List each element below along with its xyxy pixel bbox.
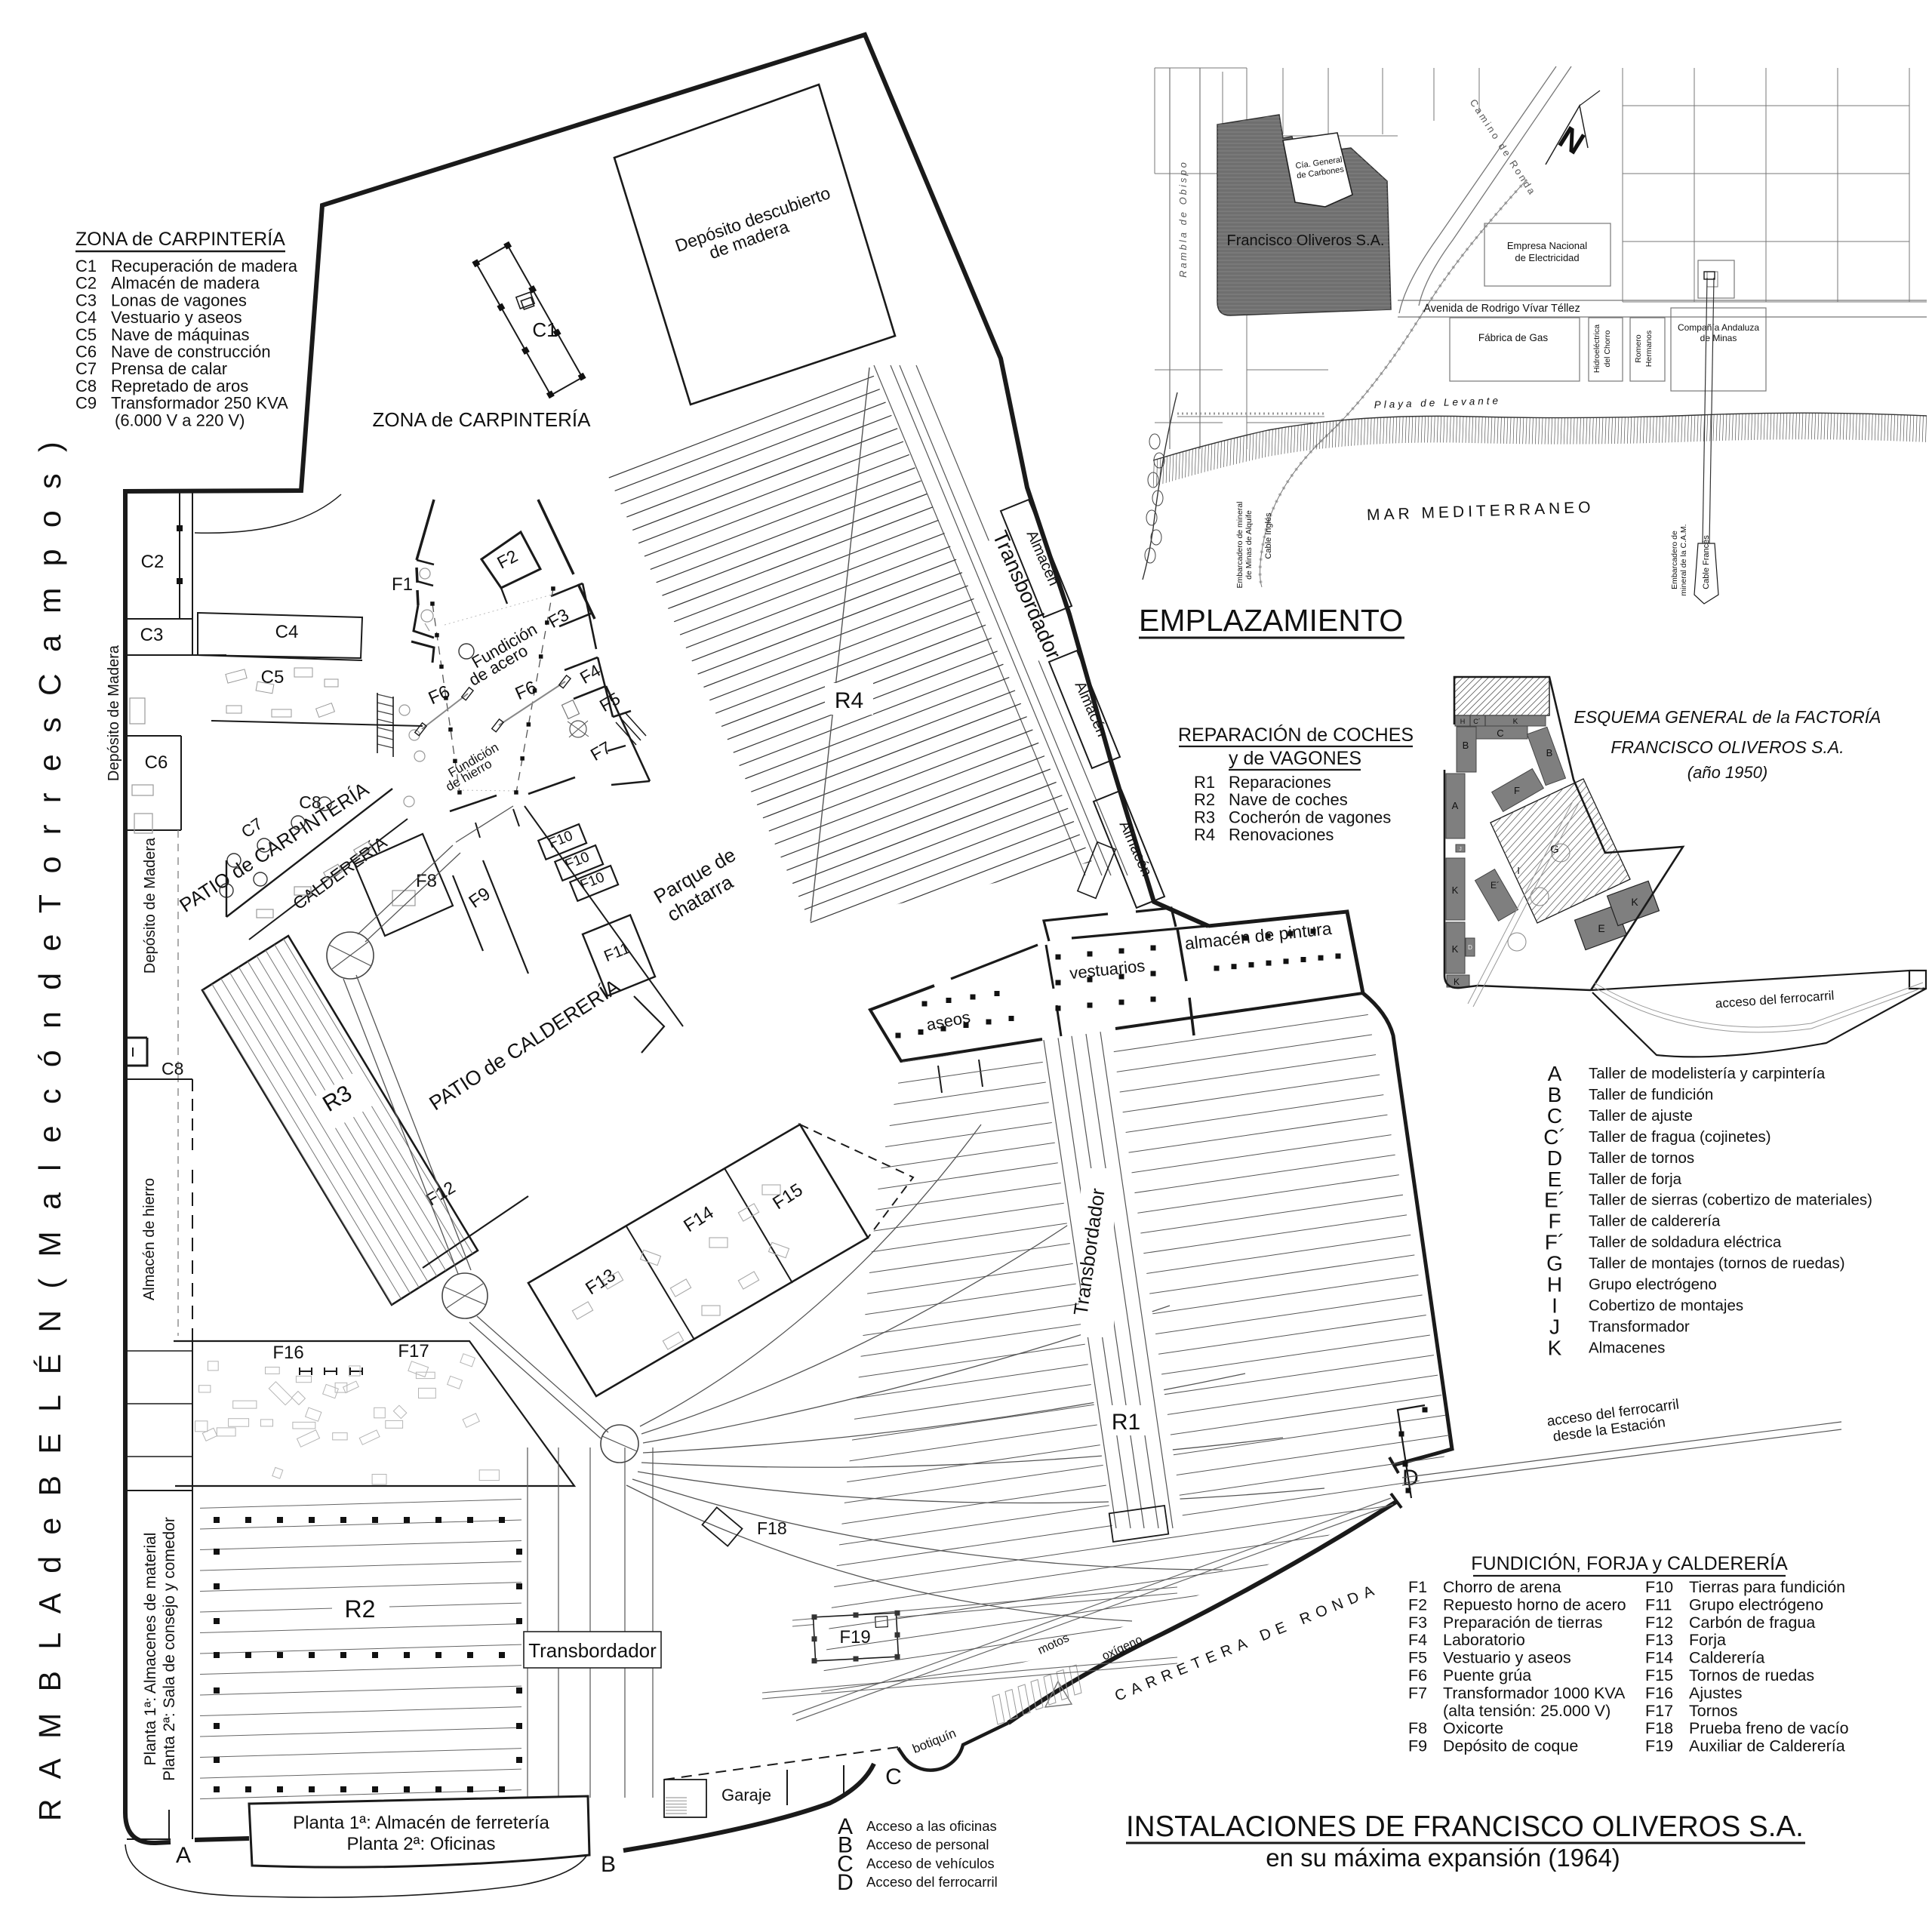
svg-text:Transformador 1000 KVA: Transformador 1000 KVA: [1443, 1684, 1626, 1702]
svg-text:G: G: [1546, 1252, 1563, 1275]
svg-text:F19: F19: [1645, 1737, 1673, 1755]
svg-text:F15: F15: [1645, 1666, 1673, 1684]
svg-text:Vestuario y aseos: Vestuario y aseos: [1443, 1649, 1571, 1667]
svg-text:ESQUEMA GENERAL de la FACTORÍA: ESQUEMA GENERAL de la FACTORÍA: [1574, 707, 1881, 727]
svg-text:C3: C3: [75, 291, 97, 309]
svg-text:Puente grúa: Puente grúa: [1443, 1666, 1531, 1684]
svg-text:I: I: [1517, 865, 1520, 876]
svg-text:C4: C4: [275, 622, 299, 642]
svg-text:F12: F12: [1645, 1614, 1673, 1632]
svg-text:Hidroeléctrica: Hidroeléctrica: [1592, 325, 1601, 373]
svg-text:R3: R3: [1194, 808, 1215, 826]
svg-text:Taller de ajuste: Taller de ajuste: [1589, 1107, 1693, 1124]
svg-text:F1: F1: [392, 574, 413, 595]
svg-text:F1: F1: [1408, 1578, 1427, 1596]
svg-text:de Minas de Alquife: de Minas de Alquife: [1244, 510, 1254, 580]
svg-text:F16: F16: [1645, 1684, 1673, 1702]
svg-text:F6: F6: [1408, 1666, 1427, 1684]
svg-text:E´: E´: [1544, 1189, 1565, 1212]
svg-text:Nave de coches: Nave de coches: [1229, 790, 1348, 809]
svg-text:C6: C6: [75, 343, 97, 361]
svg-text:Taller de fragua (cojinetes): Taller de fragua (cojinetes): [1589, 1128, 1771, 1146]
svg-text:Cable Inglés: Cable Inglés: [1264, 512, 1273, 559]
svg-text:C: C: [1497, 728, 1503, 739]
svg-text:F10: F10: [1645, 1578, 1673, 1596]
svg-text:C6: C6: [145, 752, 168, 773]
svg-text:Taller de tornos: Taller de tornos: [1589, 1149, 1694, 1167]
svg-text:Depósito de coque: Depósito de coque: [1443, 1737, 1578, 1755]
svg-text:Prensa de calar: Prensa de calar: [111, 359, 227, 378]
svg-text:en su máxima expansión (1964): en su máxima expansión (1964): [1266, 1844, 1620, 1872]
svg-text:(año 1950): (año 1950): [1687, 763, 1767, 782]
svg-text:Transformador: Transformador: [1589, 1318, 1690, 1335]
svg-text:FRANCISCO OLIVEROS S.A.: FRANCISCO OLIVEROS S.A.: [1611, 737, 1844, 757]
svg-text:EMPLAZAMIENTO: EMPLAZAMIENTO: [1139, 603, 1403, 638]
svg-text:C9: C9: [75, 394, 97, 413]
svg-text:Forja: Forja: [1689, 1631, 1726, 1649]
svg-text:C7: C7: [75, 359, 97, 378]
svg-text:Taller de montajes (tornos de: Taller de montajes (tornos de ruedas): [1589, 1255, 1845, 1272]
svg-text:Almacén de hierro: Almacén de hierro: [141, 1178, 158, 1300]
svg-text:Preparación de tierras: Preparación de tierras: [1443, 1614, 1603, 1632]
svg-text:Embarcadero de mineral: Embarcadero de mineral: [1235, 502, 1244, 589]
svg-text:I: I: [1552, 1294, 1558, 1318]
svg-text:B: B: [1546, 747, 1553, 758]
svg-text:C5: C5: [75, 325, 97, 344]
svg-text:Nave de construcción: Nave de construcción: [111, 343, 271, 361]
svg-text:Almacén de madera: Almacén de madera: [111, 274, 260, 293]
svg-text:K: K: [1513, 718, 1518, 726]
svg-text:R4: R4: [835, 688, 863, 713]
svg-text:Depósito de Madera: Depósito de Madera: [142, 837, 158, 974]
svg-text:Taller de fundición: Taller de fundición: [1589, 1086, 1713, 1103]
svg-text:Grupo electrógeno: Grupo electrógeno: [1689, 1595, 1823, 1614]
svg-text:Romero: Romero: [1634, 334, 1643, 363]
svg-text:C4: C4: [75, 308, 97, 327]
svg-text:Planta 1ª: Almacén de ferreter: Planta 1ª: Almacén de ferretería: [293, 1813, 549, 1833]
svg-text:B: B: [1463, 740, 1469, 751]
svg-text:Planta 2ª: Oficinas: Planta 2ª: Oficinas: [347, 1834, 496, 1854]
svg-text:y de VAGONES: y de VAGONES: [1229, 748, 1361, 769]
svg-text:D: D: [1547, 1146, 1562, 1170]
svg-text:C´: C´: [1473, 718, 1481, 725]
svg-text:C3: C3: [140, 625, 164, 645]
svg-text:E´: E´: [1491, 880, 1500, 891]
svg-text:C2: C2: [75, 274, 97, 293]
svg-text:B: B: [1548, 1083, 1562, 1106]
svg-text:Carbón de fragua: Carbón de fragua: [1689, 1614, 1815, 1632]
svg-text:Transbordador: Transbordador: [528, 1639, 657, 1662]
svg-text:Empresa Nacional: Empresa Nacional: [1507, 240, 1587, 251]
svg-text:Rambla de Obispo: Rambla de Obispo: [1177, 160, 1189, 278]
svg-text:F4: F4: [1408, 1631, 1427, 1649]
svg-text:Fábrica de Gas: Fábrica de Gas: [1478, 332, 1549, 343]
svg-text:ZONA de CARPINTERÍA: ZONA de CARPINTERÍA: [75, 228, 285, 250]
svg-text:C1: C1: [75, 257, 97, 275]
svg-text:Depósito de Madera: Depósito de Madera: [106, 645, 122, 781]
svg-text:C8: C8: [162, 1059, 183, 1078]
svg-text:Compañía Andaluza: Compañía Andaluza: [1678, 322, 1759, 333]
svg-text:(alta tensión: 25.000 V): (alta tensión: 25.000 V): [1443, 1702, 1611, 1720]
svg-text:C´: C´: [1543, 1125, 1566, 1149]
svg-text:Hermanos: Hermanos: [1644, 331, 1654, 367]
svg-text:Tornos: Tornos: [1689, 1702, 1738, 1720]
svg-text:Cable Francés: Cable Francés: [1702, 535, 1711, 589]
svg-text:Tornos de ruedas: Tornos de ruedas: [1689, 1666, 1814, 1684]
svg-text:Auxiliar de Calderería: Auxiliar de Calderería: [1689, 1737, 1845, 1755]
svg-text:Vestuario y aseos: Vestuario y aseos: [111, 308, 242, 327]
svg-text:F18: F18: [1645, 1719, 1673, 1737]
svg-text:Transformador 250 KVA: Transformador 250 KVA: [111, 394, 288, 413]
svg-text:A: A: [1548, 1062, 1562, 1085]
svg-text:F17: F17: [1645, 1702, 1673, 1720]
svg-text:Ajustes: Ajustes: [1689, 1684, 1743, 1702]
svg-text:Francisco Oliveros S.A.: Francisco Oliveros S.A.: [1227, 232, 1385, 249]
svg-text:Avenida de Rodrigo Vívar T: Avenida de Rodrigo Vívar Téllez: [1423, 303, 1580, 315]
svg-text:R A M B L A d e B E L É N: R A M B L A d e B E L É N ( M a l e c ó …: [32, 435, 67, 1821]
svg-text:(6.000 V a 220 V): (6.000 V a 220 V): [115, 411, 245, 429]
svg-text:H: H: [1460, 718, 1466, 725]
svg-text:Garaje: Garaje: [721, 1786, 771, 1804]
svg-text:Taller de modelistería y carpi: Taller de modelistería y carpintería: [1589, 1065, 1826, 1082]
svg-text:F11: F11: [1645, 1595, 1672, 1614]
svg-text:Reparaciones: Reparaciones: [1229, 773, 1331, 792]
svg-text:F´: F´: [1545, 1231, 1564, 1254]
svg-text:F16: F16: [272, 1343, 303, 1363]
svg-text:D: D: [837, 1870, 854, 1895]
svg-text:F9: F9: [1408, 1737, 1427, 1755]
svg-text:R1: R1: [1112, 1410, 1140, 1435]
svg-text:C8: C8: [75, 377, 97, 395]
svg-text:F: F: [1548, 1210, 1561, 1233]
svg-text:C2: C2: [141, 552, 165, 572]
svg-text:del Chorro: del Chorro: [1603, 330, 1612, 367]
svg-text:F19: F19: [839, 1627, 870, 1647]
svg-text:Planta 1ª: Almacenes de materi: Planta 1ª: Almacenes de material: [142, 1533, 159, 1766]
svg-text:C: C: [1547, 1104, 1562, 1128]
svg-text:Repretado de aros: Repretado de aros: [111, 377, 248, 395]
svg-text:Acceso a las oficinas: Acceso a las oficinas: [866, 1818, 997, 1834]
svg-text:F: F: [1514, 785, 1520, 796]
svg-text:B: B: [601, 1852, 616, 1877]
svg-text:ZONA de CARPINTERÍA: ZONA de CARPINTERÍA: [373, 408, 592, 431]
svg-text:K: K: [1548, 1336, 1562, 1359]
svg-text:Planta 2ª: Sala de consejo y c: Planta 2ª: Sala de consejo y comedor: [161, 1517, 178, 1781]
svg-text:K: K: [1452, 884, 1459, 896]
svg-text:F5: F5: [1408, 1649, 1427, 1667]
svg-text:D: D: [1402, 1466, 1419, 1491]
svg-text:Taller de sierras (cobertizo d: Taller de sierras (cobertizo de material…: [1589, 1192, 1872, 1209]
svg-text:Recuperación de madera: Recuperación de madera: [111, 257, 298, 275]
svg-text:E: E: [1598, 922, 1604, 934]
svg-text:R1: R1: [1194, 773, 1215, 792]
svg-text:Chorro de arena: Chorro de arena: [1443, 1578, 1561, 1596]
svg-text:INSTALACIONES DE FRANCISCO OLI: INSTALACIONES DE FRANCISCO OLIVEROS S.A.: [1126, 1810, 1804, 1843]
svg-text:C: C: [885, 1764, 902, 1789]
svg-text:Oxicorte: Oxicorte: [1443, 1719, 1503, 1737]
svg-text:C1: C1: [532, 318, 557, 341]
svg-text:J: J: [1549, 1315, 1560, 1338]
svg-text:Renovaciones: Renovaciones: [1229, 826, 1334, 844]
svg-text:D: D: [1468, 944, 1472, 951]
svg-text:Lonas de vagones: Lonas de vagones: [111, 291, 247, 309]
svg-text:Prueba freno de vacío: Prueba freno de vacío: [1689, 1719, 1849, 1737]
svg-text:de Electricidad: de Electricidad: [1515, 252, 1579, 263]
svg-text:Acceso de vehículos: Acceso de vehículos: [866, 1855, 995, 1871]
svg-text:A: A: [1452, 800, 1459, 811]
svg-text:F3: F3: [1408, 1614, 1427, 1632]
svg-text:FUNDICIÓN, FORJA y CALDERERÍA: FUNDICIÓN, FORJA y CALDERERÍA: [1471, 1552, 1788, 1574]
svg-text:Nave de máquinas: Nave de máquinas: [111, 325, 249, 344]
svg-text:E: E: [1548, 1168, 1562, 1191]
svg-text:Tierras para fundición: Tierras para fundición: [1689, 1578, 1845, 1596]
svg-text:R2: R2: [1194, 790, 1215, 809]
svg-text:Taller de calderería: Taller de calderería: [1589, 1213, 1721, 1230]
svg-text:Almacenes: Almacenes: [1589, 1339, 1665, 1356]
svg-text:K: K: [1454, 977, 1460, 987]
svg-text:mineral de la C.A.M.: mineral de la C.A.M.: [1679, 524, 1688, 595]
svg-text:Taller de soldadura eléctrica: Taller de soldadura eléctrica: [1589, 1234, 1782, 1251]
svg-text:J: J: [1459, 847, 1462, 852]
svg-text:Repuesto horno de acero: Repuesto horno de acero: [1443, 1595, 1626, 1614]
svg-text:F8: F8: [416, 871, 437, 891]
svg-text:F13: F13: [1645, 1631, 1673, 1649]
svg-text:Embarcadero de: Embarcadero de: [1670, 531, 1679, 589]
svg-text:R4: R4: [1194, 826, 1215, 844]
svg-text:Acceso de personal: Acceso de personal: [866, 1837, 989, 1853]
svg-text:REPARACIÓN de COCHES: REPARACIÓN de COCHES: [1178, 724, 1414, 746]
svg-text:Laboratorio: Laboratorio: [1443, 1631, 1525, 1649]
svg-text:F14: F14: [1645, 1649, 1673, 1667]
svg-text:F8: F8: [1408, 1719, 1427, 1737]
svg-text:A: A: [176, 1843, 191, 1868]
svg-text:K: K: [1631, 896, 1638, 908]
svg-text:Calderería: Calderería: [1689, 1649, 1764, 1667]
svg-text:K: K: [1452, 943, 1459, 955]
svg-text:Taller de forja: Taller de forja: [1589, 1171, 1682, 1188]
svg-text:Acceso del ferrocarril: Acceso del ferrocarril: [866, 1874, 998, 1890]
svg-text:R2: R2: [345, 1595, 376, 1623]
svg-text:F18: F18: [757, 1518, 787, 1538]
svg-text:F7: F7: [1408, 1684, 1427, 1702]
svg-text:Grupo electrógeno: Grupo electrógeno: [1589, 1276, 1717, 1294]
svg-text:F2: F2: [1408, 1595, 1427, 1614]
svg-text:F17: F17: [398, 1341, 429, 1361]
svg-text:Cocherón de vagones: Cocherón de vagones: [1229, 808, 1391, 826]
svg-text:H: H: [1547, 1273, 1562, 1297]
svg-text:Cobertizo de montajes: Cobertizo de montajes: [1589, 1297, 1743, 1315]
